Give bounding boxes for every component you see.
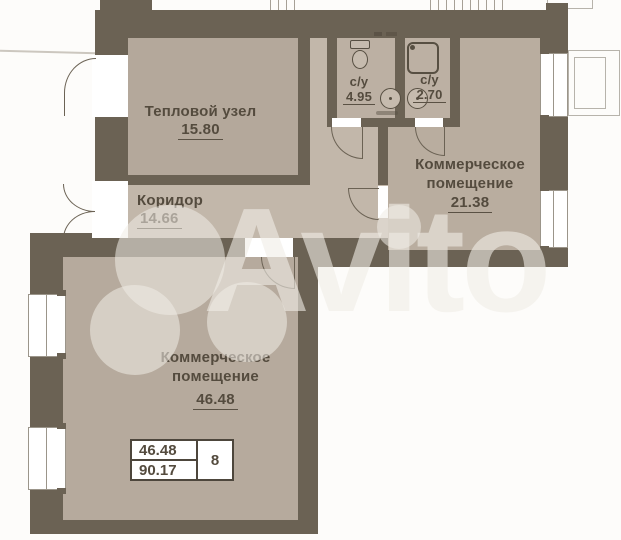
- wall-teplovoy-bottom: [128, 175, 310, 185]
- balcony-outline-inner: [574, 57, 606, 109]
- wall-right-section-bottom: [318, 250, 568, 267]
- room-label-su-left: с/у 4.95: [330, 74, 388, 105]
- window-sill-nub: [540, 115, 549, 120]
- window-sill-nub: [57, 290, 66, 296]
- window-right-2: [540, 190, 568, 248]
- tiny-fixture-label-smudge: [376, 111, 398, 115]
- vent-mark: [386, 32, 397, 36]
- door-opening-bath-left: [332, 118, 361, 127]
- wall-teplovoy-right: [298, 38, 310, 185]
- wall-corridor-kom21: [378, 127, 388, 188]
- window-left-1-glass: [46, 295, 47, 356]
- room-area: 15.80: [178, 121, 223, 140]
- window-left-1: [28, 294, 66, 357]
- room-area: 46.48: [193, 390, 238, 410]
- summary-total-area: 90.17: [132, 461, 196, 479]
- vent-mark: [374, 32, 382, 36]
- window-sill-nub: [540, 246, 549, 251]
- area-summary-table: 46.48 90.17 8: [130, 439, 234, 481]
- window-left-2-glass: [46, 428, 47, 489]
- neighbor-wall-line: [0, 50, 96, 55]
- wall-bigroom-bottom: [30, 520, 318, 534]
- room-name-line1: Коммерческое: [400, 155, 540, 174]
- room-area: 14.66: [137, 210, 182, 229]
- floor-plan: Тепловой узел 15.80 Коридор 14.66 с/у 4.…: [0, 0, 621, 540]
- room-area: 4.95: [343, 89, 375, 105]
- window-right-1-glass: [553, 54, 554, 116]
- room-label-su-right: с/у 2.70: [402, 72, 457, 103]
- door-opening-kom21: [378, 186, 388, 218]
- room-kom21-floor-right: [460, 38, 540, 250]
- door-arc-entrance-lower: [63, 211, 95, 239]
- window-left-2: [28, 427, 66, 490]
- summary-unit-number: 8: [198, 441, 232, 479]
- toilet-bowl-icon: [352, 50, 368, 69]
- door-opening-entrance: [92, 181, 128, 238]
- room-name: с/у: [402, 72, 457, 87]
- window-sill-nub: [57, 423, 66, 429]
- room-name: Тепловой узел: [118, 103, 283, 121]
- room-label-kom21: Коммерческое помещение 21.38: [400, 155, 540, 213]
- room-name-line2: помещение: [400, 174, 540, 193]
- wall-top: [95, 10, 568, 38]
- window-right-1: [540, 53, 568, 117]
- door-opening-bath-right: [415, 118, 443, 127]
- door-arc-teplovoy: [64, 58, 96, 116]
- door-opening-kom46: [245, 238, 293, 257]
- room-name: с/у: [330, 74, 388, 89]
- room-label-teplovoy: Тепловой узел 15.80: [118, 103, 283, 140]
- room-label-kom46: Коммерческое помещение 46.48: [128, 348, 303, 410]
- room-name-line2: помещение: [128, 367, 303, 386]
- window-sill-nub: [57, 353, 66, 359]
- vestibule-floor: [310, 38, 327, 185]
- room-area: 21.38: [448, 193, 493, 213]
- toilet-icon: [350, 40, 370, 49]
- window-sill-nub: [540, 186, 549, 191]
- shower-head-icon: [410, 45, 415, 50]
- wall-top-stub: [100, 0, 152, 12]
- room-area: 2.70: [413, 87, 445, 103]
- sink-drain-icon: [389, 97, 392, 100]
- window-sill-nub: [57, 488, 66, 494]
- room-label-koridor: Коридор 14.66: [137, 192, 237, 229]
- summary-living-area: 46.48: [132, 441, 196, 461]
- room-name-line1: Коммерческое: [128, 348, 303, 367]
- door-arc-entrance-upper: [63, 184, 95, 212]
- room-name: Коридор: [137, 192, 237, 210]
- window-sill-nub: [540, 49, 549, 54]
- window-right-2-glass: [553, 191, 554, 247]
